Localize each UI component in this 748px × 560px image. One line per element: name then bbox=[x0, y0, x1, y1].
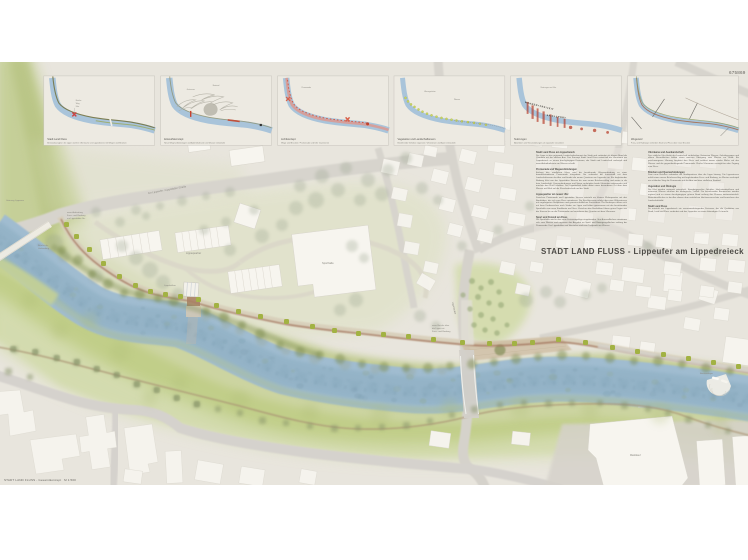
svg-text:Sporthalle: Sporthalle bbox=[322, 261, 334, 265]
svg-text:Ufervegetation: Ufervegetation bbox=[424, 90, 436, 93]
svg-text:zur Lippstädter Str.: zur Lippstädter Str. bbox=[67, 217, 86, 220]
svg-text:Wegenetz: Wegenetz bbox=[631, 137, 643, 141]
svg-text:Lichtkonzept: Lichtkonzept bbox=[281, 137, 296, 141]
svg-text:Grünzug Lippeaue: Grünzug Lippeaue bbox=[6, 199, 25, 202]
svg-text:Lippebalkon: Lippebalkon bbox=[164, 285, 177, 287]
svg-text:Verbindung: Verbindung bbox=[38, 247, 50, 250]
svg-text:Promenade: Promenade bbox=[302, 87, 311, 89]
svg-text:Ufer: Ufer bbox=[76, 106, 80, 108]
svg-text:Aktivitäten und Veranstaltunge: Aktivitäten und Veranstaltungen am Lippe… bbox=[514, 142, 564, 145]
svg-text:Bootsanleger: Bootsanleger bbox=[700, 372, 713, 375]
svg-text:Grünraum: Grünraum bbox=[187, 89, 196, 91]
svg-text:Bestehende Gehölze ergänzen /: Bestehende Gehölze ergänzen / Uferwiesen… bbox=[398, 142, 456, 145]
svg-text:Marktkauf: Marktkauf bbox=[630, 454, 641, 457]
svg-text:Weg: Weg bbox=[76, 103, 80, 105]
svg-text:Nutzungen am Ufer: Nutzungen am Ufer bbox=[541, 86, 557, 89]
svg-text:Fuss- und Radweg: Fuss- und Radweg bbox=[432, 331, 451, 333]
svg-text:Bestand: Bestand bbox=[213, 84, 220, 87]
svg-text:Vegetation und Landschaftsraum: Vegetation und Landschaftsraum bbox=[398, 137, 436, 141]
svg-text:Stadt Land Fluss: Stadt Land Fluss bbox=[47, 137, 67, 141]
svg-text:neue Anbindung: neue Anbindung bbox=[67, 211, 84, 214]
svg-text:Neue Wegeverbindungen und Aufe: Neue Wegeverbindungen und Aufenthaltsort… bbox=[164, 142, 225, 145]
svg-text:Lippequartier: Lippequartier bbox=[186, 251, 201, 255]
svg-text:Fuss- und Radweg: Fuss- und Radweg bbox=[67, 215, 86, 217]
svg-text:Wiesen: Wiesen bbox=[454, 99, 460, 101]
svg-text:die Lippe mit: die Lippe mit bbox=[432, 327, 445, 330]
svg-text:neue Brücke über: neue Brücke über bbox=[432, 324, 450, 327]
svg-text:Wege und Brücken / Promenade u: Wege und Brücken / Promenade und Ufer in… bbox=[281, 143, 329, 145]
svg-text:Nutzungen: Nutzungen bbox=[514, 137, 527, 141]
svg-text:Fuss- und Radwege verbinden St: Fuss- und Radwege verbinden Stadt und Fl… bbox=[631, 142, 690, 145]
svg-text:Brücke: Brücke bbox=[76, 100, 82, 102]
svg-text:Brücke als: Brücke als bbox=[38, 244, 49, 247]
svg-text:Bestandsanalyse: die Lippe und: Bestandsanalyse: die Lippe und ihre Ufer… bbox=[47, 142, 126, 145]
svg-text:Entwurfskonzept: Entwurfskonzept bbox=[164, 137, 183, 141]
